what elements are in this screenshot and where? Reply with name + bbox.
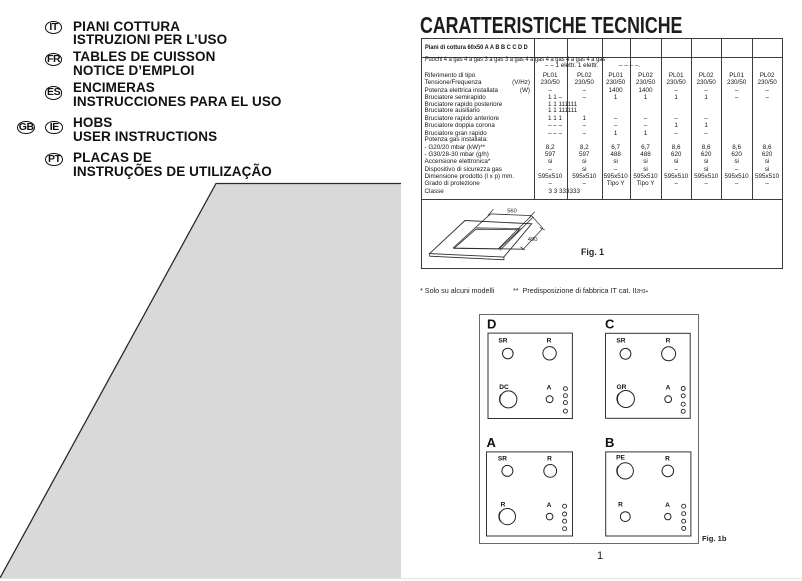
- svg-text:D: D: [487, 316, 496, 331]
- svg-text:B: B: [605, 435, 614, 450]
- svg-text:A: A: [486, 435, 496, 450]
- svg-text:A: A: [546, 502, 551, 509]
- svg-text:A: A: [665, 502, 670, 509]
- svg-text:R: R: [618, 501, 623, 508]
- svg-text:A: A: [665, 384, 670, 391]
- svg-text:DC: DC: [499, 384, 509, 391]
- svg-text:SR: SR: [616, 337, 625, 344]
- svg-text:490: 490: [528, 237, 538, 243]
- svg-text:C: C: [605, 316, 615, 331]
- svg-text:GR: GR: [616, 384, 626, 391]
- svg-text:PE: PE: [616, 454, 625, 461]
- svg-text:R: R: [665, 455, 670, 462]
- svg-text:SR: SR: [498, 337, 507, 344]
- svg-text:R: R: [547, 455, 552, 462]
- svg-text:R: R: [500, 501, 505, 508]
- svg-text:560: 560: [507, 208, 517, 214]
- svg-text:SR: SR: [497, 455, 506, 462]
- svg-text:R: R: [665, 337, 670, 344]
- svg-text:A: A: [546, 384, 551, 391]
- svg-text:R: R: [546, 337, 551, 344]
